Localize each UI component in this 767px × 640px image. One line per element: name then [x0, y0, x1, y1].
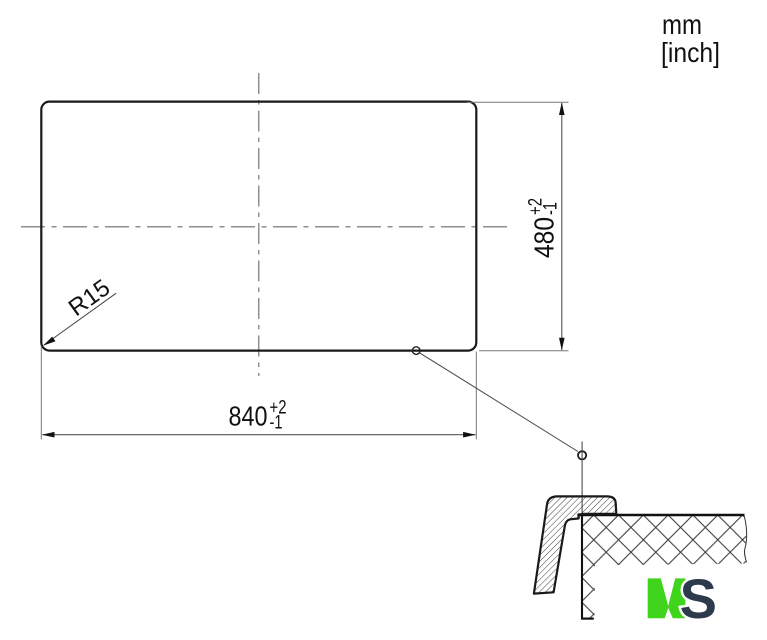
svg-text:840+2-1: 840+2-1 [229, 396, 287, 433]
svg-text:mm: mm [662, 9, 702, 40]
svg-text:S: S [680, 567, 717, 630]
svg-text:[inch]: [inch] [661, 37, 720, 68]
svg-text:R15: R15 [64, 274, 115, 322]
svg-text:480+2-1: 480+2-1 [525, 198, 562, 258]
